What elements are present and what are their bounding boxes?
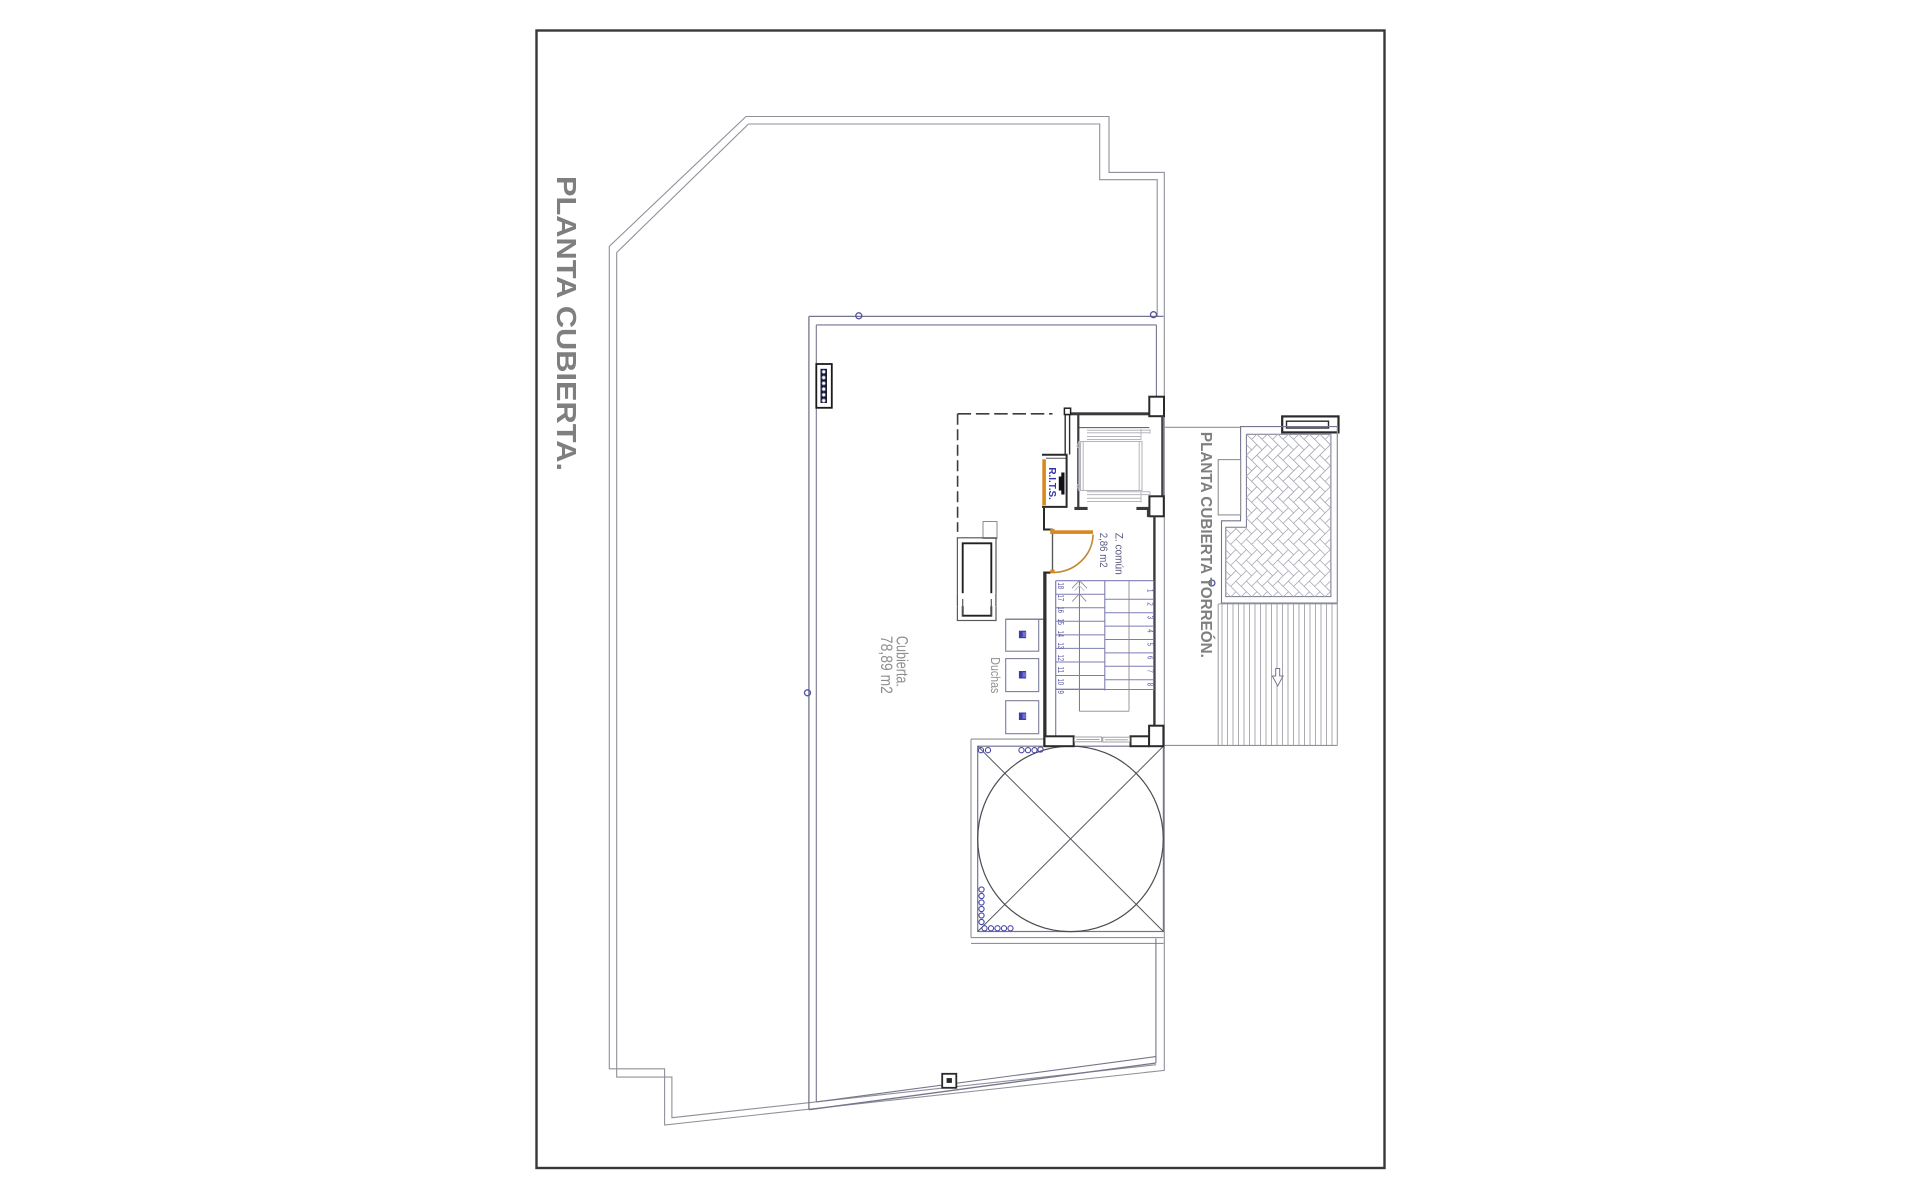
svg-text:78,89 m2: 78,89 m2 — [877, 636, 895, 694]
svg-text:2,86 m2: 2,86 m2 — [1097, 533, 1109, 568]
svg-text:R.I.T.S.: R.I.T.S. — [1046, 467, 1058, 500]
svg-text:4: 4 — [1146, 629, 1155, 633]
svg-text:8: 8 — [1146, 683, 1155, 686]
svg-text:17: 17 — [1056, 595, 1065, 602]
svg-text:13: 13 — [1056, 643, 1065, 650]
svg-text:6: 6 — [1146, 656, 1155, 659]
svg-text:18: 18 — [1056, 583, 1065, 590]
svg-text:7: 7 — [1146, 669, 1155, 672]
svg-text:14: 14 — [1056, 631, 1065, 638]
svg-text:16: 16 — [1056, 607, 1065, 614]
svg-text:PLANTA CUBIERTA TORREÓN.: PLANTA CUBIERTA TORREÓN. — [1197, 432, 1215, 658]
svg-text:12: 12 — [1056, 655, 1065, 662]
svg-text:1: 1 — [1146, 589, 1155, 592]
svg-text:15: 15 — [1056, 619, 1065, 626]
svg-text:11: 11 — [1056, 667, 1065, 674]
svg-text:3: 3 — [1146, 616, 1155, 619]
svg-text:PLANTA CUBIERTA.: PLANTA CUBIERTA. — [551, 176, 582, 471]
svg-text:10: 10 — [1056, 679, 1065, 686]
svg-text:Duchas: Duchas — [988, 657, 1002, 693]
svg-text:Z. común: Z. común — [1112, 533, 1124, 575]
svg-text:5: 5 — [1146, 643, 1155, 647]
svg-text:2: 2 — [1146, 602, 1155, 605]
svg-text:9: 9 — [1056, 691, 1065, 694]
